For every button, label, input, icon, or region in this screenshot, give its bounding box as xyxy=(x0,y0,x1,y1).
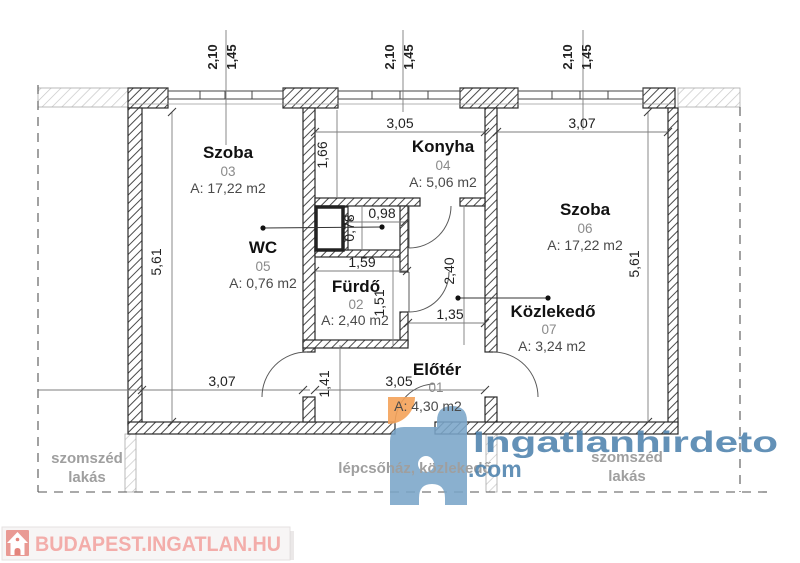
left-outer-wall xyxy=(128,108,142,425)
dim-corridor-width: 1,35 xyxy=(436,306,463,322)
room-area: A: 5,06 m2 xyxy=(409,174,477,190)
window-konyha xyxy=(338,88,460,102)
dim-top3b: 1,45 xyxy=(579,44,594,69)
dim-right-height: 5,61 xyxy=(626,250,642,277)
dim-szoba03-width: 3,07 xyxy=(208,373,235,389)
floorplan-page: 2,10 1,45 2,10 1,45 2,10 1,45 3,05 3,07 … xyxy=(0,0,800,563)
window-szoba06 xyxy=(518,88,643,102)
room-szoba06: Szoba 06 A: 17,22 m2 xyxy=(547,200,623,253)
room-area: A: 2,40 m2 xyxy=(321,312,389,328)
szoba06-door-arc xyxy=(493,352,538,397)
footer-banner: BUDAPEST.INGATLAN.HU xyxy=(2,527,294,560)
room-name: Közlekedő xyxy=(510,302,595,321)
room-area: A: 3,24 m2 xyxy=(518,338,586,354)
room-area: A: 17,22 m2 xyxy=(190,180,266,196)
room-name: WC xyxy=(249,238,277,257)
konyha-door-arc xyxy=(409,206,451,248)
neighbor-left-line2: lakás xyxy=(68,469,106,486)
furdo-bottom-wall xyxy=(303,340,408,348)
dim-wc-height: 0,78 xyxy=(341,214,357,241)
floorplan-drawing: 2,10 1,45 2,10 1,45 2,10 1,45 3,05 3,07 … xyxy=(0,0,800,563)
dim-eloter-height: 1,41 xyxy=(316,370,332,397)
watermark-brand: Ingatlanhirdeto xyxy=(473,426,778,459)
watermark-tld: .com xyxy=(468,456,522,482)
room-area: A: 0,76 m2 xyxy=(229,275,297,291)
room-area: A: 4,30 m2 xyxy=(394,398,462,414)
dim-top1a: 2,10 xyxy=(205,44,220,69)
room-name: Konyha xyxy=(412,137,475,156)
dim-top2b: 1,45 xyxy=(401,44,416,69)
dim-wc-width: 0,98 xyxy=(368,205,395,221)
dim-eloter-width: 3,05 xyxy=(385,373,412,389)
room-konyha: Konyha 04 A: 5,06 m2 xyxy=(409,137,477,190)
room-number: 05 xyxy=(255,259,270,274)
footer-banner-shadow xyxy=(290,531,294,560)
room-name: Fürdő xyxy=(332,277,380,296)
room-number: 02 xyxy=(348,297,363,312)
left-party-stub xyxy=(125,434,136,492)
bottom-wall-left xyxy=(128,422,395,434)
right-party-band xyxy=(678,88,740,107)
dim-top1b: 1,45 xyxy=(224,44,239,69)
dim-left-height: 5,61 xyxy=(148,248,164,275)
dim-corridor-height: 2,40 xyxy=(441,257,457,284)
footer-site-text: BUDAPEST.INGATLAN.HU xyxy=(35,533,281,556)
left-party-band xyxy=(38,88,128,107)
corridor-left-wall-upper xyxy=(400,206,408,272)
room-number: 01 xyxy=(428,380,443,395)
room-wc: WC 05 A: 0,76 m2 xyxy=(229,238,297,291)
room-szoba03: Szoba 03 A: 17,22 m2 xyxy=(190,143,266,196)
room-number: 03 xyxy=(220,164,235,179)
room-name: Szoba xyxy=(203,143,254,162)
dim-top3a: 2,10 xyxy=(560,44,575,69)
logo-blue-h xyxy=(390,406,467,505)
room-area: A: 17,22 m2 xyxy=(547,237,623,253)
right-outer-wall xyxy=(668,108,678,425)
room-number: 04 xyxy=(435,158,451,173)
windows xyxy=(168,88,643,102)
room-name: Előtér xyxy=(413,360,462,379)
room-name: Szoba xyxy=(560,200,611,219)
room-number: 07 xyxy=(541,322,556,337)
dim-konyha-height: 1,66 xyxy=(314,141,330,168)
shaft-box xyxy=(316,207,343,250)
house-icon xyxy=(6,530,29,556)
dim-furdo-width: 1,59 xyxy=(348,254,375,270)
dim-konyha-width: 3,05 xyxy=(386,115,413,131)
room-kozlekedo: Közlekedő 07 A: 3,24 m2 xyxy=(510,302,595,354)
room-number: 06 xyxy=(577,221,592,236)
szoba06-wall xyxy=(485,108,497,352)
window-szoba03 xyxy=(168,88,283,102)
top-dimension-labels: 2,10 1,45 2,10 1,45 2,10 1,45 xyxy=(205,44,594,69)
dim-szoba06-width: 3,07 xyxy=(568,115,595,131)
neighbor-left-line1: szomszéd xyxy=(51,450,123,467)
dim-top2a: 2,10 xyxy=(382,44,397,69)
neighbor-right-line2: lakás xyxy=(608,468,646,485)
